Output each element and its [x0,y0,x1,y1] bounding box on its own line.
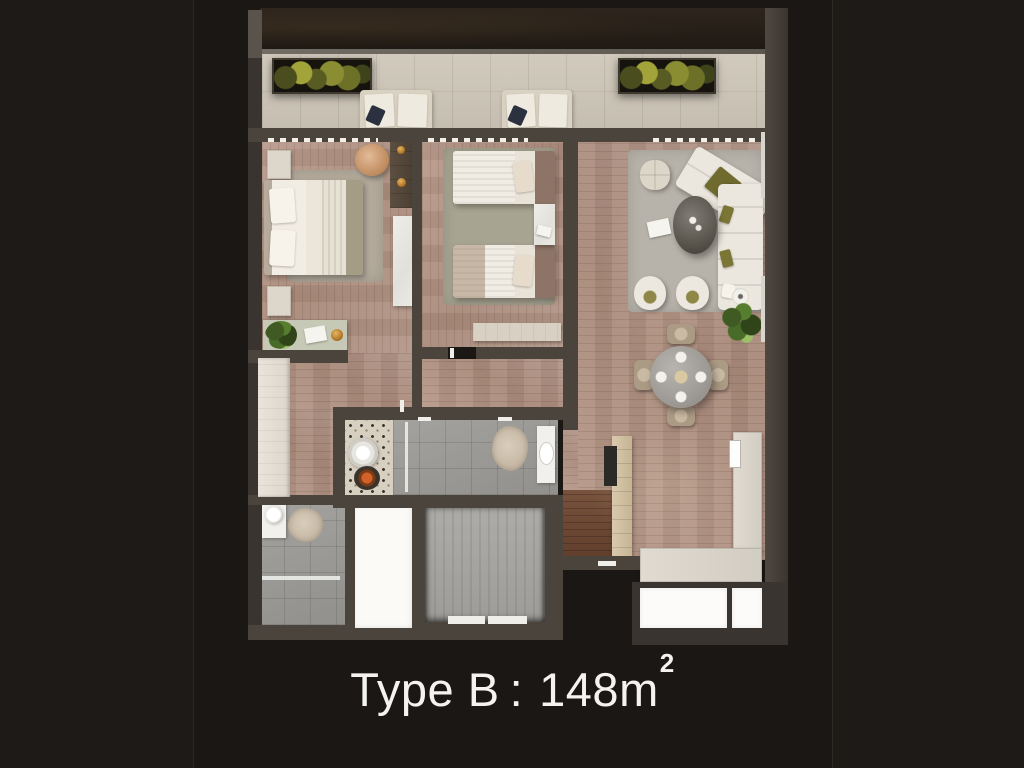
tan-throw [453,245,485,298]
console-plant [265,321,297,349]
open-book [304,325,327,343]
window-slit [761,132,765,198]
corridor-floor [422,359,563,410]
twin-nightstand [534,204,555,245]
kitchen-white-bay-right [732,588,762,628]
dining-chair-top [667,324,695,344]
kitchen-counter-bottom [640,548,762,582]
wall-void-right [412,495,425,640]
armchair [676,276,709,310]
curtain-line [268,138,378,142]
wall-bottom-utility [415,622,563,640]
planter-box-right [618,58,716,94]
bed-pillow [269,187,296,224]
vanity-sink [539,442,554,465]
nightstand [267,286,291,316]
door-marker [418,417,431,421]
master-wardrobe-unit [390,136,412,208]
decor-object [397,178,406,187]
dining-chair-bottom [667,406,695,426]
balcony-sofa-right [502,90,572,132]
living-room-floor-patch [563,430,578,492]
bath-rug [492,426,528,471]
wall-living-divider [563,138,578,430]
bed-pillow [512,254,534,287]
wall-outer-right [765,8,788,645]
utility-room-floor [425,505,545,622]
bath-rug [288,508,323,542]
olive-pillow [719,205,735,225]
caption-area-value: 148m [539,663,659,716]
entry-door-marker [598,561,616,566]
door-marker [450,348,454,358]
decor-bowl [331,329,343,341]
roof-overhang [260,8,766,50]
window-slit [761,276,765,342]
bedroom-dresser [473,323,561,341]
wall-bathroom-top [333,407,563,420]
coffee-table [673,196,717,254]
floor-plan [248,8,788,648]
olive-pillow [719,249,734,268]
wall-bathroom-left [333,407,345,507]
wall-bedroom2-bottom-right [476,347,563,359]
wall-bottom-void [345,628,425,640]
balcony-sofa-left [360,90,432,132]
kitchen-white-bay-left [640,588,727,628]
bed-pillow [512,160,535,193]
main-bathroom-floor [393,420,558,495]
nightstand [267,150,291,179]
shower-glass-panel [262,576,340,580]
curtain-line [428,138,528,142]
bed-pillow [269,229,296,266]
bathroom-vanity [537,426,555,483]
twin-bed-top [453,151,555,204]
round-ottoman [355,144,389,176]
second-bath-vanity [262,500,286,538]
console-table [263,320,347,350]
wall-outer-left [248,58,262,640]
twin-bed-bottom [453,245,555,298]
caption-area-exponent: 2 [660,648,675,678]
decor-object [397,146,405,154]
wall-bedroom-divider [412,138,422,364]
dining-table [650,346,712,408]
wall-bath2-right [345,495,355,640]
wall-bathroom-bottom [333,495,563,508]
shower-glass-panel [405,422,408,492]
master-bed [264,180,363,275]
wall-bottom-left [248,625,355,640]
curtain-line [653,138,763,142]
duvet-stripes [453,151,515,204]
book [536,224,552,237]
pouf [640,160,670,190]
vanity-round-sink [265,506,282,523]
indoor-plant [718,302,764,346]
duvet-pleats [322,180,346,275]
wall-pillar-left [248,10,262,58]
round-basin [348,438,378,468]
master-dresser [393,216,414,306]
sofa-cushion [397,94,427,128]
caption-type-label: Type B [350,663,499,716]
bathroom-stool [354,466,380,490]
threshold [488,616,527,624]
caption-text: Type B:148m2 [0,662,1024,717]
void-area [353,505,412,628]
slide-canvas: Type B:148m2 [0,0,1024,768]
door-marker [498,417,512,421]
armchair [634,276,666,310]
planter-box-left [272,58,372,94]
kitchen-sink [729,440,741,468]
door-marker [400,400,404,412]
caption-separator: : [510,663,524,716]
kitchen-counter-right [733,432,762,552]
kitchen-appliance [604,446,617,486]
threshold [448,616,485,624]
hallway-wardrobe [258,358,290,497]
sofa-cushion [538,94,567,128]
roof-edge [260,49,766,54]
wall-bedroom2-bottom-left [422,347,448,359]
